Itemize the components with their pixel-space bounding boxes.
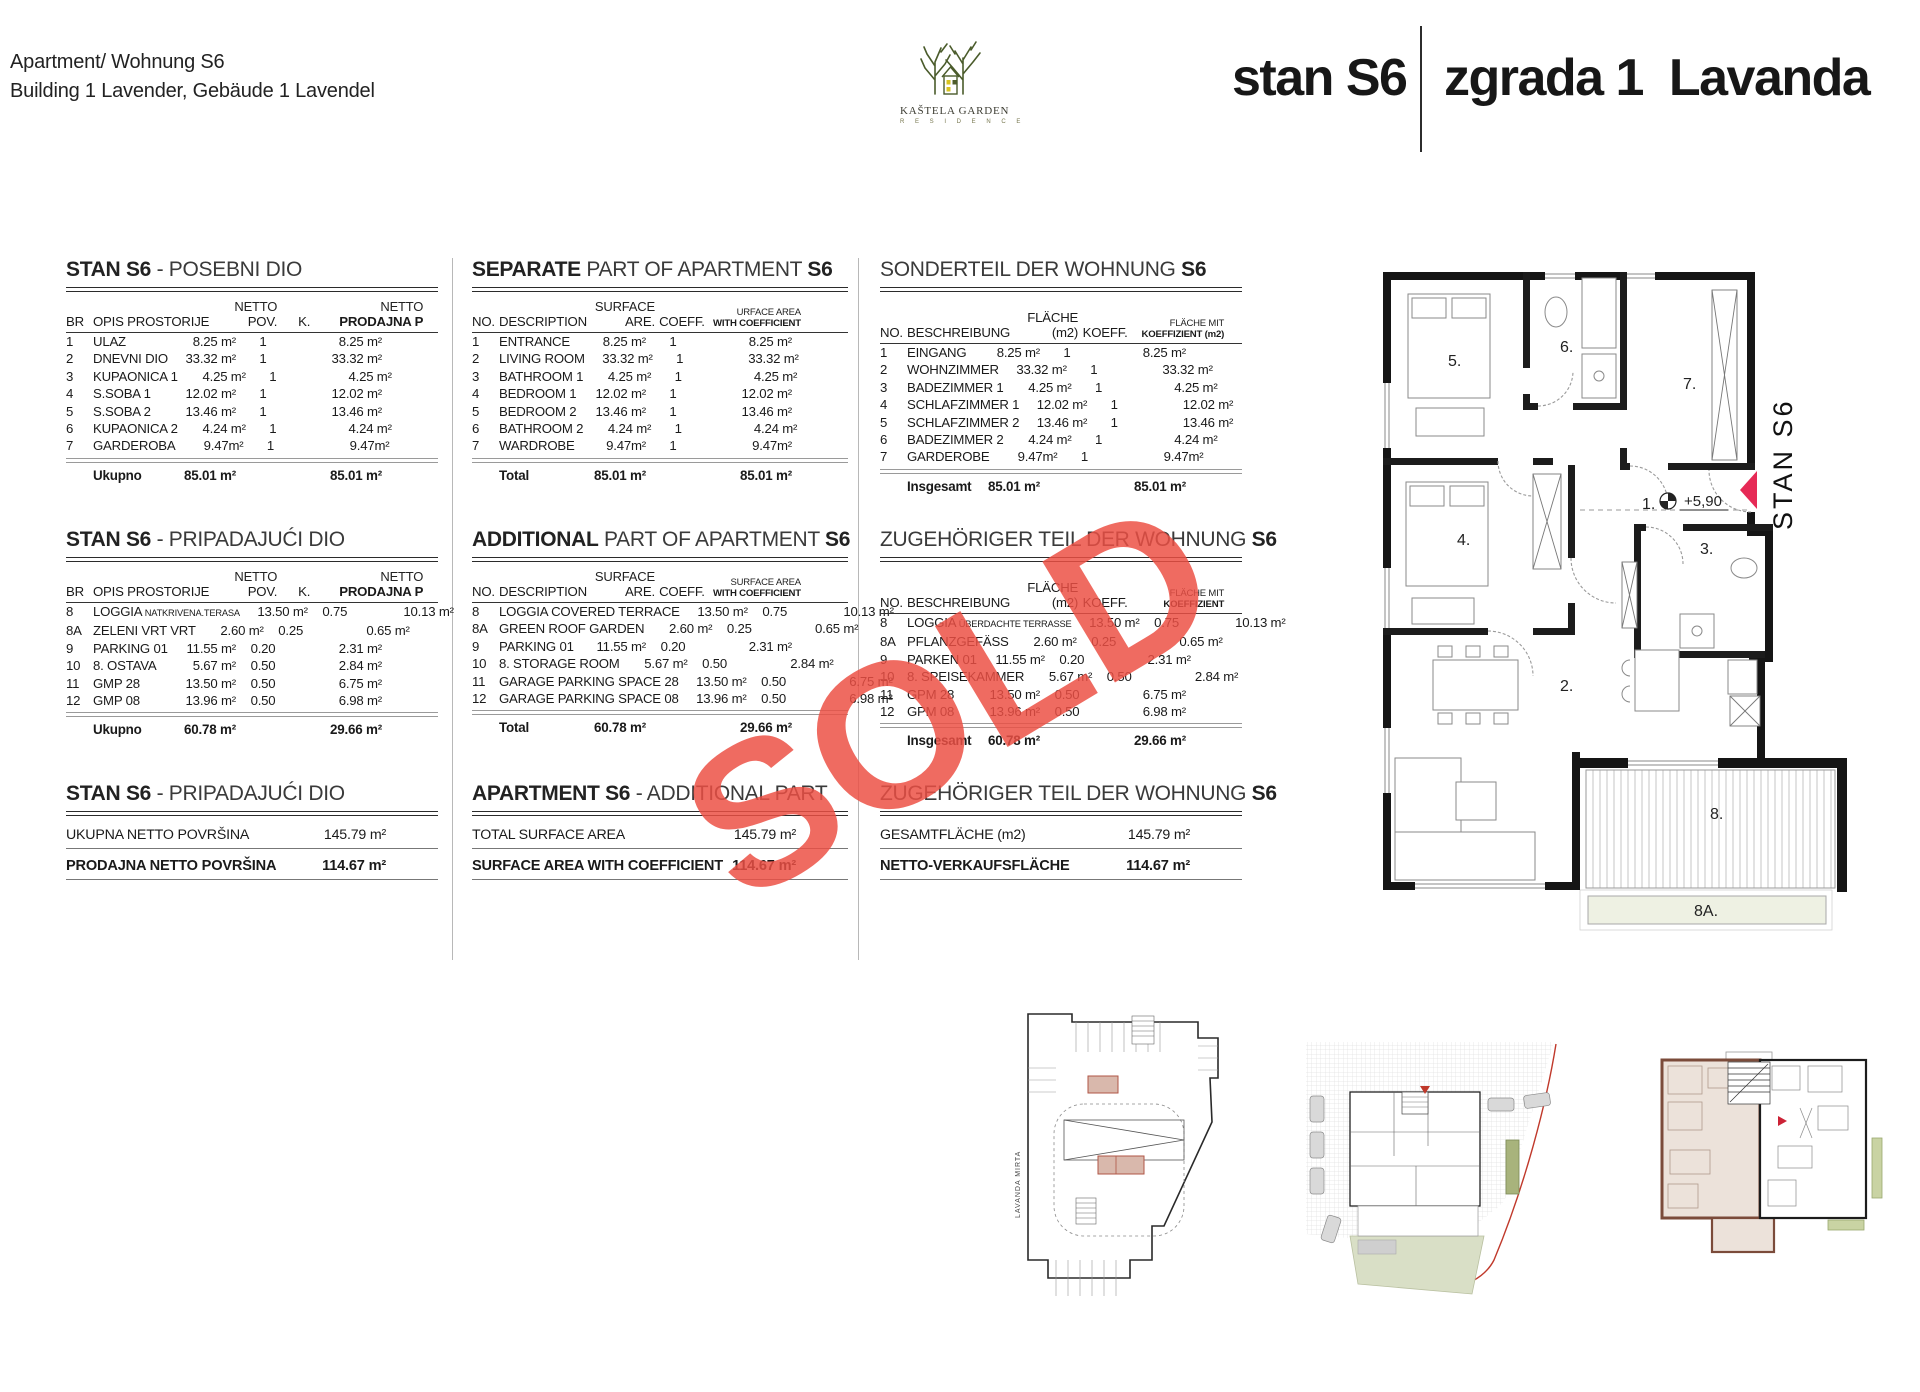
cell-spacer bbox=[1213, 361, 1269, 378]
cell-no: 9 bbox=[880, 651, 907, 668]
cell-surface-with-coefficient: 12.02 m² bbox=[696, 385, 792, 402]
cell-spacer bbox=[382, 403, 438, 420]
total-spacer bbox=[382, 719, 438, 740]
total-grid: Insgesamt85.01 m²85.01 m² bbox=[880, 476, 1242, 497]
level-value: +5,90 bbox=[1684, 493, 1722, 510]
title-segment: S6 bbox=[1252, 528, 1277, 551]
garage-outline bbox=[1028, 1014, 1218, 1278]
cell-surface-with-coefficient: 2.31 m² bbox=[696, 638, 792, 655]
title-segment: S6 bbox=[1252, 782, 1277, 805]
cell-no: 4 bbox=[880, 396, 907, 413]
cell-no: 7 bbox=[880, 448, 907, 465]
header-main: BR bbox=[66, 314, 93, 329]
area-table-de-separate: SONDERTEIL DER WOHNUNG S6 NO. BESCHREIBU… bbox=[880, 258, 1242, 497]
cell-description: ENTRANCE bbox=[499, 333, 578, 350]
total-label: Insgesamt bbox=[907, 730, 972, 751]
cell-no: 11 bbox=[472, 673, 499, 690]
neighbor-apartment bbox=[1760, 1060, 1866, 1218]
total-empty bbox=[240, 465, 286, 486]
cell-no: 2 bbox=[472, 350, 499, 367]
cell-description: GARAGE PARKING SPACE 08 bbox=[499, 690, 679, 707]
table-row: 2DNEVNI DIO33.32 m²133.32 m² bbox=[66, 350, 438, 367]
cell-surface-with-coefficient: 8.25 m² bbox=[286, 333, 382, 350]
total-surface-with-coefficient: 85.01 m² bbox=[286, 465, 382, 486]
cell-description: S.SOBA 2 bbox=[93, 403, 168, 420]
table-body: 8LOGGIA ÜBERDACHTE TERRASSE13.50 m²0.751… bbox=[880, 614, 1242, 720]
cell-surface-with-coefficient: 0.65 m² bbox=[314, 622, 410, 639]
header-main: DESCRIPTION bbox=[499, 314, 587, 329]
header-main: BR bbox=[66, 584, 93, 599]
subtitle-line-1: Apartment/ Wohnung S6 bbox=[10, 48, 375, 77]
cell-coefficient: 1 bbox=[1071, 361, 1117, 378]
cell-no: 7 bbox=[66, 437, 93, 454]
cell-coefficient: 1 bbox=[250, 368, 296, 385]
total-grid: Ukupno85.01 m²85.01 m² bbox=[66, 465, 438, 486]
table-row: 7WARDROBE9.47m²19.47m² bbox=[472, 437, 848, 454]
total-grid: Total85.01 m²85.01 m² bbox=[472, 465, 848, 486]
cell-no: 3 bbox=[66, 368, 93, 385]
total-surface: 60.78 m² bbox=[972, 730, 1044, 751]
header-cell: SURFACE AREAWITH COEFFICIENT bbox=[705, 565, 801, 599]
cell-coefficient: 0.25 bbox=[268, 622, 314, 639]
summary-label: UKUPNA NETTO POVRŠINA bbox=[66, 827, 324, 843]
total-empty bbox=[1044, 730, 1090, 751]
header-main: NO. bbox=[880, 595, 907, 610]
cell-spacer bbox=[392, 420, 448, 437]
cell-surface: 11.55 m² bbox=[578, 638, 650, 655]
header-main: BESCHREIBUNG bbox=[907, 325, 1010, 340]
cell-no: 5 bbox=[880, 414, 907, 431]
summary-value: 145.79 m² bbox=[734, 827, 848, 843]
cell-surface: 12.02 m² bbox=[578, 385, 650, 402]
terrace-pad bbox=[1358, 1240, 1396, 1254]
cell-description: BEDROOM 1 bbox=[499, 385, 578, 402]
total-empty bbox=[650, 717, 696, 738]
header-spacer bbox=[1224, 295, 1280, 340]
cell-spacer bbox=[792, 333, 848, 350]
title-segment: - ADDITIONAL PART bbox=[630, 782, 827, 805]
total-empty bbox=[66, 719, 93, 740]
cell-no: 3 bbox=[880, 379, 907, 396]
table-header: BR OPIS PROSTORIJENETTOPOV. K.NETTOPRODA… bbox=[66, 565, 438, 599]
cell-no: 8 bbox=[472, 603, 499, 620]
table-row: 4S.SOBA 112.02 m²112.02 m² bbox=[66, 385, 438, 402]
cell-description: PFLANZGEFÄSS bbox=[907, 633, 1009, 650]
table-row: 5S.SOBA 213.46 m²113.46 m² bbox=[66, 403, 438, 420]
header-main: KOEFF. bbox=[1082, 325, 1128, 340]
header-cell: K. bbox=[281, 295, 327, 329]
cell-no: 10 bbox=[880, 668, 907, 685]
header-cell: NETTOPRODAJNA P bbox=[327, 295, 423, 329]
table-body: 1EINGANG8.25 m²18.25 m²2WOHNZIMMER33.32 … bbox=[880, 344, 1242, 466]
total-empty bbox=[880, 730, 907, 751]
header-cell: NETTOPRODAJNA P bbox=[327, 565, 423, 599]
cell-spacer bbox=[1238, 668, 1294, 685]
cell-surface-with-coefficient: 6.75 m² bbox=[1090, 686, 1186, 703]
cell-description: LOGGIA ÜBERDACHTE TERRASSE bbox=[907, 614, 1072, 633]
cell-surface: 8.25 m² bbox=[972, 344, 1044, 361]
cell-coefficient: 0.50 bbox=[1044, 686, 1090, 703]
cell-coefficient: 1 bbox=[650, 403, 696, 420]
header-main: POV. bbox=[209, 314, 277, 329]
cell-description: SCHLAFZIMMER 1 bbox=[907, 396, 1019, 413]
cell-description: PARKING 01 bbox=[93, 640, 168, 657]
title-segment: S6 bbox=[825, 528, 850, 551]
total-empty bbox=[240, 719, 286, 740]
header-top: NETTO bbox=[327, 569, 423, 584]
total-row: Total60.78 m²29.66 m² bbox=[472, 717, 848, 738]
cell-surface-with-coefficient: 13.46 m² bbox=[696, 403, 792, 420]
cell-coefficient: 0.50 bbox=[692, 655, 738, 672]
header-cell: K. bbox=[281, 565, 327, 599]
cell-description: GPM 08 bbox=[907, 703, 972, 720]
table-header: NO. BESCHREIBUNG FLÄCHE (m2) KOEFF.FLÄCH… bbox=[880, 295, 1242, 340]
cell-no: 5 bbox=[472, 403, 499, 420]
cell-surface: 9.47m² bbox=[989, 448, 1061, 465]
total-grid: Total60.78 m²29.66 m² bbox=[472, 717, 848, 738]
header-cell: NO. bbox=[880, 295, 907, 340]
table-row: 6BADEZIMMER 24.24 m²14.24 m² bbox=[880, 431, 1242, 448]
cell-surface: 33.32 m² bbox=[585, 350, 657, 367]
total-spacer bbox=[1186, 476, 1242, 497]
cell-no: 8 bbox=[880, 614, 907, 633]
cell-surface: 13.50 m² bbox=[1072, 614, 1144, 633]
header-main: BESCHREIBUNG bbox=[907, 595, 1010, 610]
cell-description: S.SOBA 1 bbox=[93, 385, 168, 402]
cell-no: 11 bbox=[880, 686, 907, 703]
total-spacer bbox=[792, 465, 848, 486]
thumbnail-garage-plan: LAVANDA MIRTA bbox=[1012, 1006, 1280, 1342]
cell-no: 8 bbox=[66, 603, 93, 622]
street-label-vertical: LAVANDA MIRTA bbox=[1015, 1151, 1022, 1218]
cell-description: BADEZIMMER 2 bbox=[907, 431, 1004, 448]
cell-surface-with-coefficient: 33.32 m² bbox=[1117, 361, 1213, 378]
logo-name: KAŠTELA GARDEN bbox=[900, 105, 1004, 117]
cell-coefficient: 1 bbox=[655, 368, 701, 385]
cell-coefficient: 0.50 bbox=[751, 673, 797, 690]
cell-surface-with-coefficient: 13.46 m² bbox=[1137, 414, 1233, 431]
cell-coefficient: 0.75 bbox=[1144, 614, 1190, 633]
cell-coefficient: 1 bbox=[650, 333, 696, 350]
cell-surface-with-coefficient: 6.75 m² bbox=[797, 673, 893, 690]
header-main: FLÄCHE (m2) bbox=[1010, 310, 1078, 340]
cell-no: 8A bbox=[66, 622, 93, 639]
title-segment: PART OF APARTMENT bbox=[581, 258, 808, 281]
logo-trees-icon bbox=[917, 36, 987, 98]
total-empty bbox=[650, 465, 696, 486]
table-row: 12GARAGE PARKING SPACE 0813.96 m²0.506.9… bbox=[472, 690, 848, 707]
cell-coefficient: 0.50 bbox=[240, 692, 286, 709]
cell-surface: 4.24 m² bbox=[583, 420, 655, 437]
header-cell: KOEFF. bbox=[1082, 565, 1128, 610]
cell-description: BATHROOM 1 bbox=[499, 368, 583, 385]
area-table-de-additional: ZUGEHÖRIGER TEIL DER WOHNUNG S6 NO. BESC… bbox=[880, 528, 1242, 751]
table-row: 6BATHROOM 24.24 m²14.24 m² bbox=[472, 420, 848, 437]
cell-surface: 2.60 m² bbox=[196, 622, 268, 639]
cell-no: 5 bbox=[66, 403, 93, 420]
cell-description-small: ÜBERDACHTE TERRASSE bbox=[956, 619, 1071, 629]
cell-no: 1 bbox=[472, 333, 499, 350]
cell-surface-with-coefficient: 8.25 m² bbox=[696, 333, 792, 350]
cell-no: 9 bbox=[66, 640, 93, 657]
area-table-hr-separate: STAN S6 - POSEBNI DIO BR OPIS PROSTORIJE… bbox=[66, 258, 438, 486]
title-segment: SEPARATE bbox=[472, 258, 581, 281]
total-label: Insgesamt bbox=[907, 476, 972, 497]
total-empty bbox=[1044, 476, 1090, 497]
header-cell: COEFF. bbox=[659, 295, 705, 329]
table-row: 8AZELENI VRT VRT2.60 m²0.250.65 m² bbox=[66, 622, 438, 639]
header-main: WITH COEFFICIENT bbox=[705, 588, 801, 599]
cell-spacer bbox=[392, 368, 448, 385]
cell-surface: 12.02 m² bbox=[1019, 396, 1091, 413]
cell-spacer bbox=[382, 350, 438, 367]
total-surface-with-coefficient: 85.01 m² bbox=[1090, 476, 1186, 497]
floor-plan-sheet: Apartment/ Wohnung S6 Building 1 Lavende… bbox=[0, 0, 1920, 1392]
table-title: APARTMENT S6 - ADDITIONAL PART bbox=[472, 782, 848, 806]
cell-no: 4 bbox=[472, 385, 499, 402]
cell-surface: 13.50 m² bbox=[972, 686, 1044, 703]
cell-surface: 13.96 m² bbox=[972, 703, 1044, 720]
header-top: SURFACE AREA bbox=[705, 577, 801, 588]
cell-spacer bbox=[410, 622, 466, 639]
header-cell: FLÄCHE MITKOEFFIZIENT bbox=[1128, 565, 1224, 610]
title-rule bbox=[472, 811, 848, 816]
header-main: K. bbox=[281, 314, 327, 329]
header-cell: NO. bbox=[880, 565, 907, 610]
highlighted-loggia bbox=[1712, 1218, 1774, 1252]
table-row: 9PARKEN 0111.55 m²0.202.31 m² bbox=[880, 651, 1242, 668]
header-cell: DESCRIPTION bbox=[499, 565, 587, 599]
total-rule bbox=[472, 458, 848, 463]
cell-coefficient: 0.75 bbox=[752, 603, 798, 620]
cell-surface-with-coefficient: 6.75 m² bbox=[286, 675, 382, 692]
cell-no: 2 bbox=[880, 361, 907, 378]
unit-title: stan S6 bbox=[1232, 48, 1406, 108]
title-segment: - POSEBNI DIO bbox=[151, 258, 302, 281]
table-row: 1ENTRANCE8.25 m²18.25 m² bbox=[472, 333, 848, 350]
cell-surface: 8.25 m² bbox=[578, 333, 650, 350]
header-main: KOEFFIZIENT bbox=[1128, 599, 1224, 610]
total-surface-with-coefficient: 85.01 m² bbox=[696, 465, 792, 486]
unit-label-vertical: STAN S6 bbox=[1768, 398, 1798, 530]
cell-description: 8. OSTAVA bbox=[93, 657, 168, 674]
cell-no: 6 bbox=[472, 420, 499, 437]
title-rule bbox=[880, 557, 1242, 562]
thumbnail-key-plan bbox=[1650, 1046, 1890, 1274]
header-cell: BESCHREIBUNG bbox=[907, 295, 1010, 340]
cell-description: KUPAONICA 1 bbox=[93, 368, 178, 385]
cell-no: 6 bbox=[66, 420, 93, 437]
table-row: 8LOGGIA COVERED TERRACE13.50 m²0.7510.13… bbox=[472, 603, 848, 620]
cell-surface-with-coefficient: 0.65 m² bbox=[1127, 633, 1223, 650]
cell-coefficient: 0.50 bbox=[240, 657, 286, 674]
cell-surface: 4.24 m² bbox=[1004, 431, 1076, 448]
cell-spacer bbox=[1191, 651, 1247, 668]
total-label: Total bbox=[499, 465, 578, 486]
cell-spacer bbox=[382, 657, 438, 674]
cell-surface: 12.02 m² bbox=[168, 385, 240, 402]
total-surface-with-coefficient: 29.66 m² bbox=[696, 717, 792, 738]
header-cell: NETTOPOV. bbox=[209, 565, 281, 599]
area-table-hr-additional: STAN S6 - PRIPADAJUĆI DIO BR OPIS PROSTO… bbox=[66, 528, 438, 740]
cell-surface: 5.67 m² bbox=[620, 655, 692, 672]
cell-coefficient: 0.25 bbox=[716, 620, 762, 637]
summary-row: TOTAL SURFACE AREA145.79 m² bbox=[472, 818, 848, 849]
cell-spacer bbox=[382, 385, 438, 402]
table-row: 7GARDEROBE9.47m²19.47m² bbox=[880, 448, 1242, 465]
table-row: 4SCHLAFZIMMER 112.02 m²112.02 m² bbox=[880, 396, 1242, 413]
total-surface: 85.01 m² bbox=[168, 465, 240, 486]
summary-label: PRODAJNA NETTO POVRŠINA bbox=[66, 858, 322, 874]
table-row: 1ULAZ8.25 m²18.25 m² bbox=[66, 333, 438, 350]
header-cell: NETTOPOV. bbox=[209, 295, 281, 329]
table-row: 8APFLANZGEFÄSS2.60 m²0.250.65 m² bbox=[880, 633, 1242, 650]
table-row: 1EINGANG8.25 m²18.25 m² bbox=[880, 344, 1242, 361]
cell-surface: 4.25 m² bbox=[583, 368, 655, 385]
cell-description: PARKING 01 bbox=[499, 638, 578, 655]
summary-label: GESAMTFLÄCHE (m2) bbox=[880, 827, 1128, 843]
cell-spacer bbox=[1203, 448, 1259, 465]
title-segment: ZUGEHÖRIGER TEIL DER WOHNUNG bbox=[880, 528, 1252, 551]
header-main: KOEFF. bbox=[1082, 595, 1128, 610]
cell-spacer bbox=[382, 692, 438, 709]
total-label: Total bbox=[499, 717, 578, 738]
cell-description: ZELENI VRT VRT bbox=[93, 622, 196, 639]
cell-surface-with-coefficient: 4.25 m² bbox=[701, 368, 797, 385]
header-top: FLÄCHE MIT bbox=[1128, 588, 1224, 599]
header-top: SURFACE bbox=[587, 569, 655, 584]
title-segment: S6 bbox=[1181, 258, 1206, 281]
table-title: ADDITIONAL PART OF APARTMENT S6 bbox=[472, 528, 848, 552]
cell-spacer bbox=[1186, 703, 1242, 720]
hedge bbox=[1506, 1140, 1519, 1194]
table-title: ZUGEHÖRIGER TEIL DER WOHNUNG S6 bbox=[880, 782, 1242, 806]
cell-coefficient: 0.20 bbox=[650, 638, 696, 655]
header-main: OPIS PROSTORIJE bbox=[93, 314, 209, 329]
cell-surface: 11.55 m² bbox=[977, 651, 1049, 668]
room-label-1: 1. bbox=[1642, 496, 1655, 513]
cell-surface-with-coefficient: 0.65 m² bbox=[762, 620, 858, 637]
header-cell: SURFACEARE. bbox=[587, 565, 659, 599]
cell-coefficient: 0.50 bbox=[751, 690, 797, 707]
cell-coefficient: 1 bbox=[240, 350, 286, 367]
total-surface: 60.78 m² bbox=[168, 719, 240, 740]
cell-surface-with-coefficient: 10.13 m² bbox=[358, 603, 454, 622]
cell-description: GMP 28 bbox=[93, 675, 168, 692]
cell-spacer bbox=[382, 675, 438, 692]
cell-description: GARDEROBA bbox=[93, 437, 175, 454]
header-cell: FLÄCHE (m2) bbox=[1010, 565, 1082, 610]
cell-surface-with-coefficient: 33.32 m² bbox=[703, 350, 799, 367]
cell-description-small: NATKRIVENA.TERASA bbox=[142, 608, 239, 618]
header-main: NO. bbox=[880, 325, 907, 340]
cell-spacer bbox=[1223, 633, 1279, 650]
cell-surface: 9.47m² bbox=[175, 437, 247, 454]
cell-coefficient: 1 bbox=[240, 403, 286, 420]
table-header: NO. DESCRIPTIONSURFACEARE. COEFF.URFACE … bbox=[472, 295, 848, 329]
header-main: WITH COEFFICIENT bbox=[705, 318, 801, 329]
table-row: 6KUPAONICA 24.24 m²14.24 m² bbox=[66, 420, 438, 437]
cell-surface: 9.47m² bbox=[578, 437, 650, 454]
header-main: NO. bbox=[472, 584, 499, 599]
cell-surface: 13.50 m² bbox=[168, 675, 240, 692]
header-main: COEFF. bbox=[659, 584, 705, 599]
cell-no: 12 bbox=[66, 692, 93, 709]
header-main: NO. bbox=[472, 314, 499, 329]
cell-spacer bbox=[1218, 431, 1274, 448]
building-title: zgrada 1 Lavanda bbox=[1444, 48, 1869, 108]
cell-surface: 2.60 m² bbox=[644, 620, 716, 637]
cell-description: GREEN ROOF GARDEN bbox=[499, 620, 644, 637]
total-surface: 60.78 m² bbox=[578, 717, 650, 738]
header-spacer bbox=[1224, 565, 1280, 610]
cell-spacer bbox=[1186, 344, 1242, 361]
cell-no: 6 bbox=[880, 431, 907, 448]
summary-row: SURFACE AREA WITH COEFFICIENT114.67 m² bbox=[472, 849, 848, 880]
summary-row: UKUPNA NETTO POVRŠINA145.79 m² bbox=[66, 818, 438, 849]
table-body: 1ULAZ8.25 m²18.25 m²2DNEVNI DIO33.32 m²1… bbox=[66, 333, 438, 455]
cell-no: 1 bbox=[66, 333, 93, 350]
cell-surface: 13.46 m² bbox=[168, 403, 240, 420]
room-label-8: 8. bbox=[1710, 806, 1723, 823]
area-table-en-separate: SEPARATE PART OF APARTMENT S6 NO. DESCRI… bbox=[472, 258, 848, 486]
summary-table-de-total: ZUGEHÖRIGER TEIL DER WOHNUNG S6GESAMTFLÄ… bbox=[880, 782, 1242, 880]
cell-spacer bbox=[792, 385, 848, 402]
area-table-en-additional: ADDITIONAL PART OF APARTMENT S6 NO. DESC… bbox=[472, 528, 848, 738]
table-header: NO. BESCHREIBUNG FLÄCHE (m2) KOEFF.FLÄCH… bbox=[880, 565, 1242, 610]
summary-table-hr-total: STAN S6 - PRIPADAJUĆI DIOUKUPNA NETTO PO… bbox=[66, 782, 438, 880]
total-rule bbox=[66, 712, 438, 717]
header-main: ARE. bbox=[587, 584, 655, 599]
header-top: URFACE AREA bbox=[705, 307, 801, 318]
room-label-3: 3. bbox=[1700, 541, 1713, 558]
cell-no: 12 bbox=[472, 690, 499, 707]
table-row: 4BEDROOM 112.02 m²112.02 m² bbox=[472, 385, 848, 402]
building-footprint bbox=[1350, 1092, 1480, 1236]
thumbnail-site-plan bbox=[1298, 1036, 1630, 1318]
cell-surface: 2.60 m² bbox=[1009, 633, 1081, 650]
header-top: SURFACE bbox=[587, 299, 655, 314]
cell-coefficient: 0.50 bbox=[1044, 703, 1090, 720]
cell-surface: 8.25 m² bbox=[168, 333, 240, 350]
title-rule bbox=[66, 287, 438, 292]
header-main: KOEFFIZIENT (m2) bbox=[1128, 329, 1224, 340]
table-row: 3KUPAONICA 14.25 m²14.25 m² bbox=[66, 368, 438, 385]
cell-coefficient: 1 bbox=[657, 350, 703, 367]
title-segment: APARTMENT S6 bbox=[472, 782, 630, 805]
summary-row: GESAMTFLÄCHE (m2)145.79 m² bbox=[880, 818, 1242, 849]
cell-coefficient: 1 bbox=[1091, 396, 1137, 413]
cell-surface-with-coefficient: 4.25 m² bbox=[1122, 379, 1218, 396]
table-row: 12GPM 0813.96 m²0.506.98 m² bbox=[880, 703, 1242, 720]
total-empty bbox=[472, 717, 499, 738]
cell-spacer bbox=[382, 640, 438, 657]
cell-surface-with-coefficient: 2.31 m² bbox=[1095, 651, 1191, 668]
total-empty bbox=[472, 465, 499, 486]
cell-surface-with-coefficient: 2.84 m² bbox=[286, 657, 382, 674]
header-spacer bbox=[801, 295, 857, 329]
total-empty bbox=[880, 476, 907, 497]
cell-surface: 33.32 m² bbox=[999, 361, 1071, 378]
logo-subname: R E S I D E N C E bbox=[900, 119, 1004, 125]
green-strip-right bbox=[1872, 1138, 1882, 1198]
cell-description: DNEVNI DIO bbox=[93, 350, 168, 367]
cell-no: 4 bbox=[66, 385, 93, 402]
cell-description: GMP 08 bbox=[93, 692, 168, 709]
cell-surface-with-coefficient: 6.98 m² bbox=[1090, 703, 1186, 720]
cell-surface-with-coefficient: 8.25 m² bbox=[1090, 344, 1186, 361]
header-main: DESCRIPTION bbox=[499, 584, 587, 599]
